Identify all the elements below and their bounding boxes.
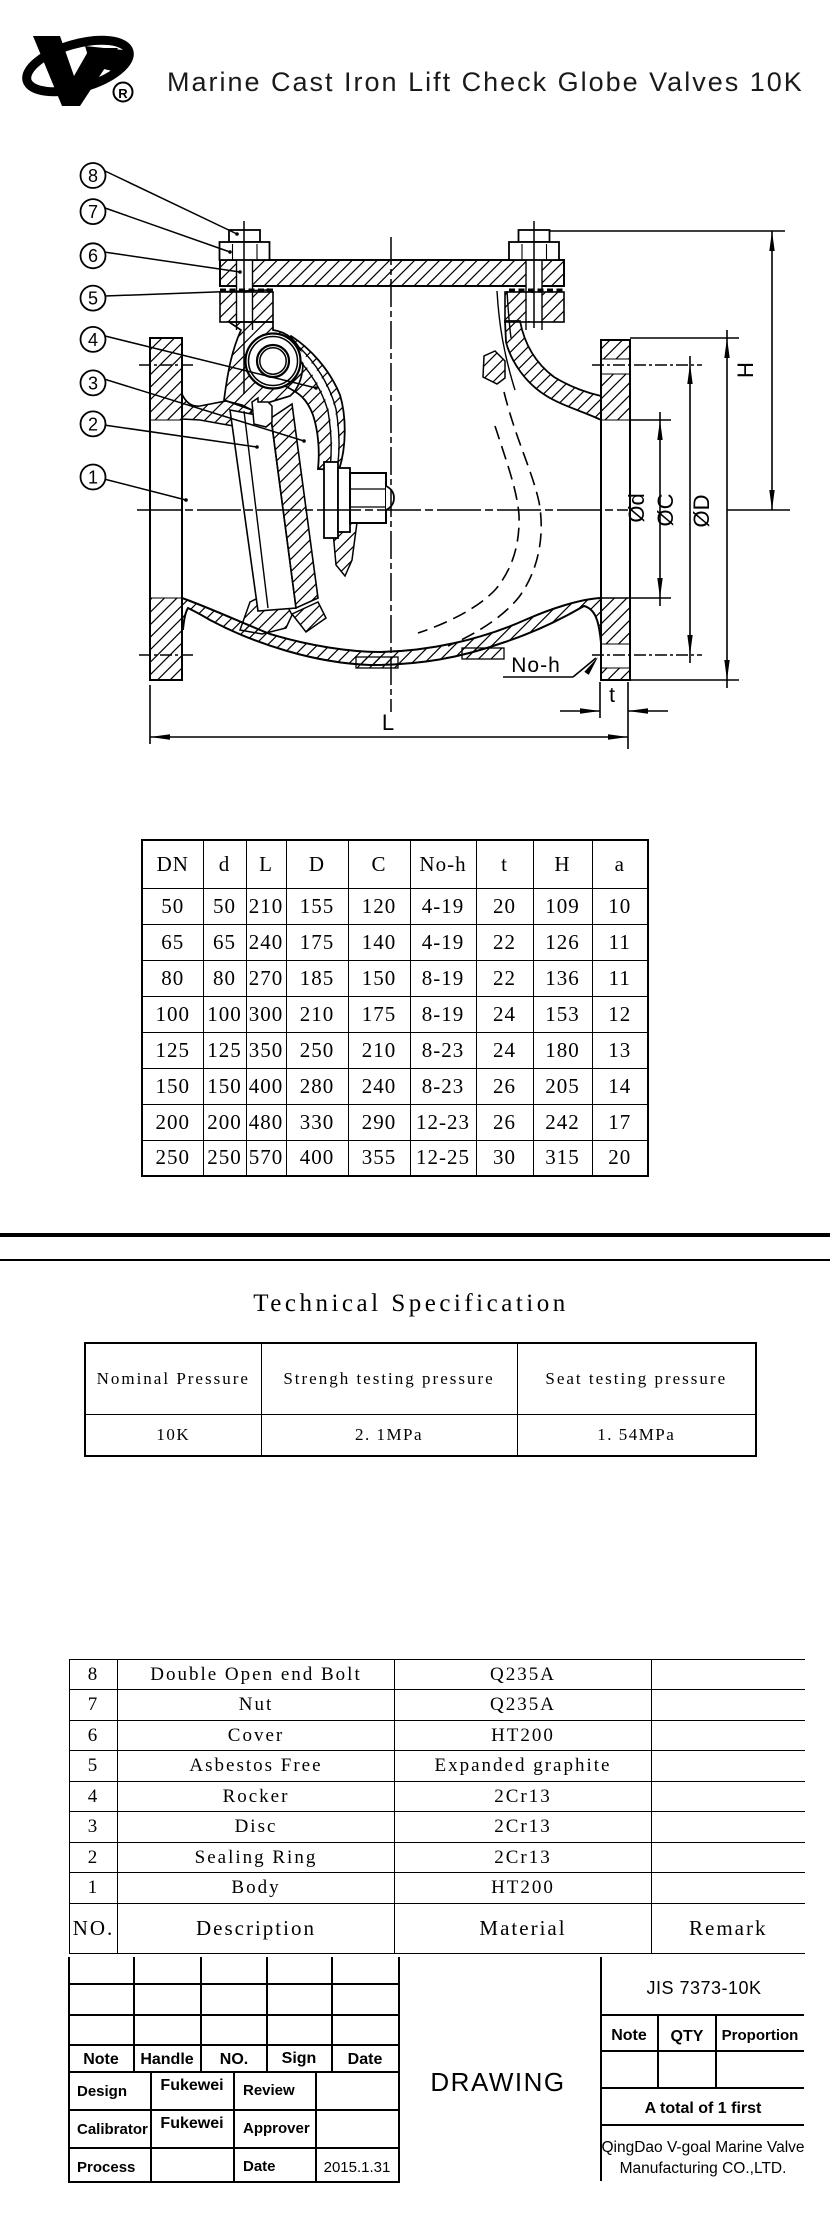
svg-text:Calibrator: Calibrator xyxy=(77,2121,148,2138)
svg-text:No-h: No-h xyxy=(511,654,561,677)
svg-text:Date: Date xyxy=(348,2051,383,2068)
svg-text:JIS 7373-10K: JIS 7373-10K xyxy=(646,1978,761,1998)
svg-text:Manufacturing CO.,LTD.: Manufacturing CO.,LTD. xyxy=(620,2160,787,2177)
svg-text:ØD: ØD xyxy=(689,495,714,528)
svg-text:2015.1.31: 2015.1.31 xyxy=(324,2159,391,2176)
svg-text:Note: Note xyxy=(83,2051,119,2068)
svg-text:QingDao V-goal Marine Valve: QingDao V-goal Marine Valve xyxy=(601,2139,804,2156)
svg-text:Ød: Ød xyxy=(624,493,649,522)
svg-text:Fukewei: Fukewei xyxy=(160,2077,223,2094)
svg-text:NO.: NO. xyxy=(220,2051,248,2068)
svg-text:Sign: Sign xyxy=(282,2050,317,2067)
svg-text:A total of 1 first: A total of 1 first xyxy=(645,2100,762,2117)
svg-text:Review: Review xyxy=(243,2082,295,2099)
svg-text:5: 5 xyxy=(88,289,98,309)
svg-text:L: L xyxy=(382,710,394,735)
svg-text:Approver: Approver xyxy=(243,2120,310,2137)
svg-text:Fukewei: Fukewei xyxy=(160,2115,223,2132)
svg-text:Process: Process xyxy=(77,2159,135,2176)
svg-text:3: 3 xyxy=(88,374,98,394)
svg-text:t: t xyxy=(609,684,615,707)
svg-text:H: H xyxy=(733,362,758,378)
svg-text:Handle: Handle xyxy=(140,2051,193,2068)
svg-text:7: 7 xyxy=(88,202,98,222)
svg-text:ØC: ØC xyxy=(653,493,678,526)
svg-text:Date: Date xyxy=(243,2158,276,2175)
svg-text:QTY: QTY xyxy=(671,2028,704,2045)
svg-text:6: 6 xyxy=(88,246,98,266)
svg-text:2: 2 xyxy=(88,415,98,435)
svg-text:Note: Note xyxy=(611,2027,647,2044)
svg-text:1: 1 xyxy=(88,468,98,488)
svg-text:DRAWING: DRAWING xyxy=(430,2067,565,2097)
svg-text:4: 4 xyxy=(88,330,98,350)
svg-text:8: 8 xyxy=(88,166,98,186)
svg-text:Proportion: Proportion xyxy=(722,2027,799,2044)
svg-text:Design: Design xyxy=(77,2083,127,2100)
